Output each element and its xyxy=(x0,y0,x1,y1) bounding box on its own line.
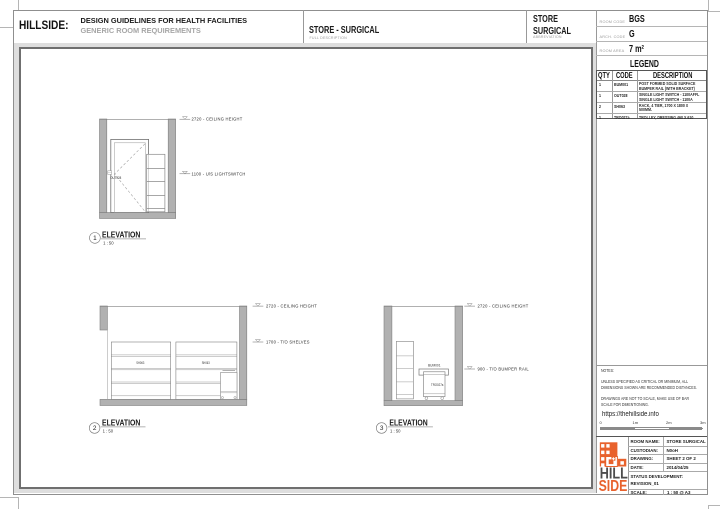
svg-text:SH063: SH063 xyxy=(202,361,210,365)
svg-text:OUT028: OUT028 xyxy=(110,176,121,180)
svg-text:1 : 50: 1 : 50 xyxy=(103,428,114,433)
svg-text:TRO027a: TRO027a xyxy=(431,383,444,387)
svg-text:2720 - CEILING HEIGHT: 2720 - CEILING HEIGHT xyxy=(192,117,243,122)
svg-text:900 - T/O BUMPER RAIL: 900 - T/O BUMPER RAIL xyxy=(478,367,530,372)
svg-text:1 : 50: 1 : 50 xyxy=(390,428,401,433)
svg-text:1: 1 xyxy=(93,235,97,242)
svg-text:2720 - CEILING HEIGHT: 2720 - CEILING HEIGHT xyxy=(478,304,529,309)
svg-text:SH063: SH063 xyxy=(136,361,144,365)
svg-text:1700 - T/O SHELVES: 1700 - T/O SHELVES xyxy=(266,340,310,345)
svg-text:BUM001: BUM001 xyxy=(428,364,441,368)
svg-text:2720 - CEILING HEIGHT: 2720 - CEILING HEIGHT xyxy=(266,304,317,309)
svg-text:3: 3 xyxy=(380,425,384,432)
svg-text:ELEVATION: ELEVATION xyxy=(102,418,140,428)
svg-text:2: 2 xyxy=(93,425,97,432)
svg-text:1100 - U/S LIGHTSWITCH: 1100 - U/S LIGHTSWITCH xyxy=(192,171,246,176)
svg-text:ELEVATION: ELEVATION xyxy=(389,418,427,428)
svg-text:1 : 50: 1 : 50 xyxy=(103,240,114,245)
svg-text:ELEVATION: ELEVATION xyxy=(102,230,140,240)
